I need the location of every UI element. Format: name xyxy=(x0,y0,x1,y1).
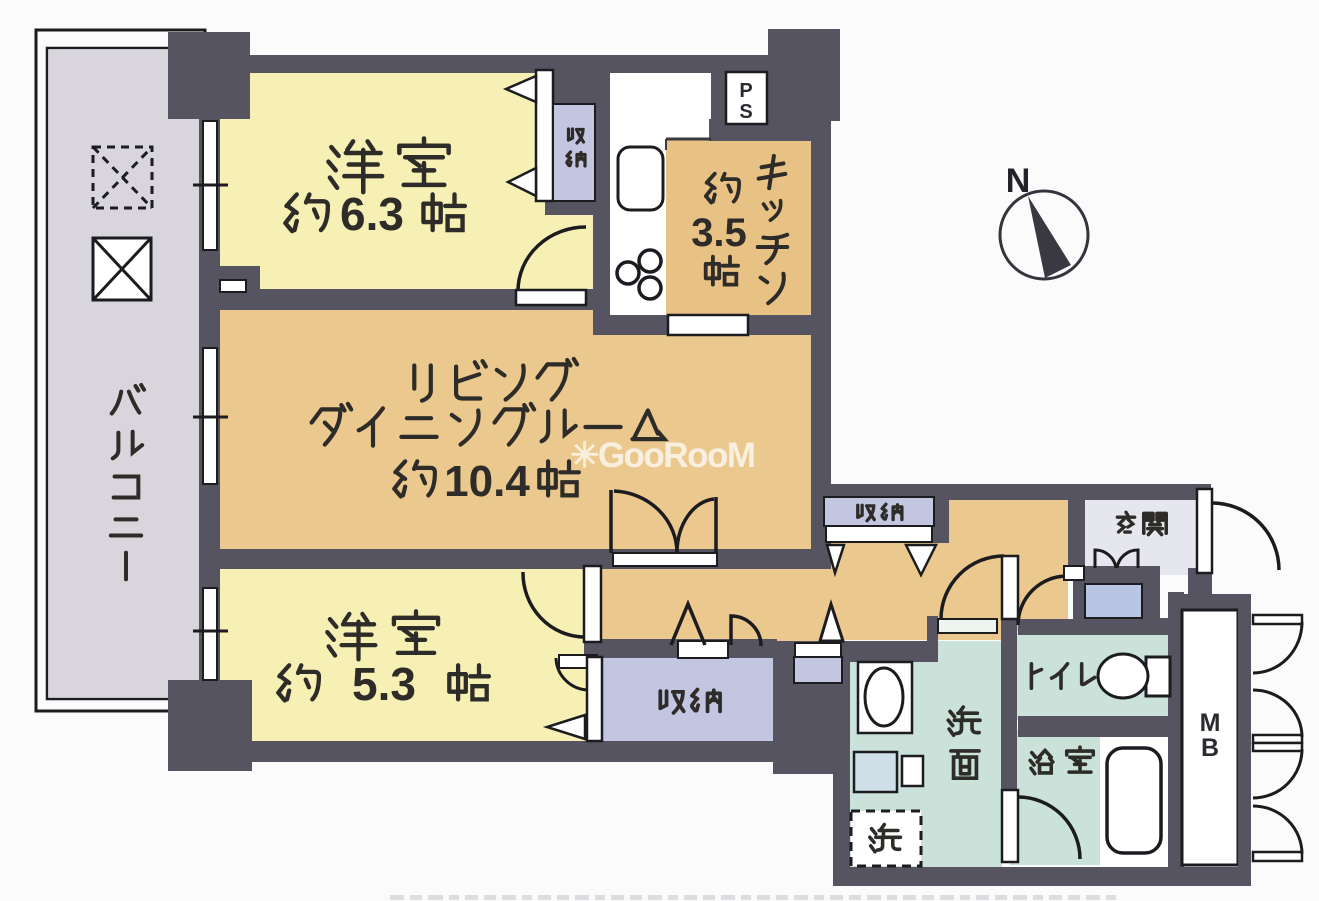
svg-text:N: N xyxy=(1006,162,1031,200)
svg-text:5.3: 5.3 xyxy=(352,658,416,710)
svg-text:3.5: 3.5 xyxy=(691,211,747,255)
svg-text:M: M xyxy=(1200,709,1221,737)
svg-text:P: P xyxy=(739,80,752,102)
svg-text:10.4: 10.4 xyxy=(444,457,530,506)
svg-text:6.3: 6.3 xyxy=(340,188,404,240)
svg-text:B: B xyxy=(1201,734,1219,762)
svg-text:S: S xyxy=(739,101,752,123)
svg-text:✳GooRooM: ✳GooRooM xyxy=(570,436,755,475)
